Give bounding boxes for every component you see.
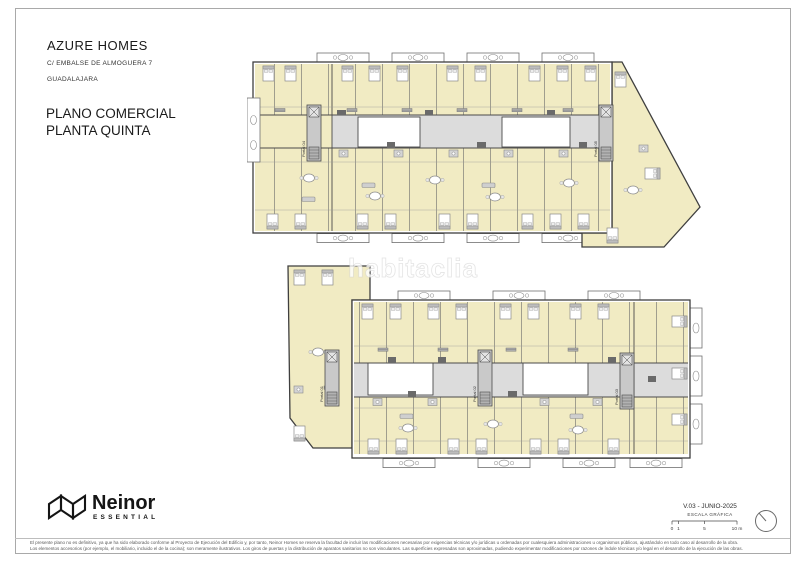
brand-name: Neinor <box>92 492 155 515</box>
footer-divider <box>15 538 790 539</box>
habitaclia-watermark: habitaclia <box>348 253 478 284</box>
scale-label: ESCALA GRÁFICA <box>660 512 760 517</box>
legal-disclaimer: El presente plano no es definitivo, ya q… <box>30 540 778 551</box>
project-address: C/ EMBALSE DE ALMOGUERA 7 <box>47 60 152 67</box>
courtyard <box>523 363 588 395</box>
north-arrow-icon <box>752 507 780 535</box>
plan-sheet: AZURE HOMES C/ EMBALSE DE ALMOGUERA 7 GU… <box>0 0 800 565</box>
portal-label: Portal 01 <box>319 385 324 402</box>
courtyard <box>502 117 570 147</box>
floor-plan-top: Portal 04 Portal 05 <box>247 50 707 250</box>
scale-tick-10: 10 m <box>732 526 743 532</box>
scale-tick-0: 0 <box>671 526 674 532</box>
floor-plan-bottom: Portal 01 Portal 02 Portal 03 <box>278 256 738 471</box>
side-balcony <box>247 98 260 162</box>
sheet-title: PLANO COMERCIAL PLANTA QUINTA <box>46 105 176 139</box>
sheet-title-line1: PLANO COMERCIAL <box>46 105 176 122</box>
legal-disclaimer-line1: El presente plano no es definitivo, ya q… <box>30 540 778 546</box>
brand-tagline: ESSENTIAL <box>93 514 158 521</box>
portal-label: Portal 04 <box>301 140 306 157</box>
scale-tick-1: 1 <box>677 526 680 532</box>
project-name: AZURE HOMES <box>47 38 148 53</box>
portal-label: Portal 03 <box>614 388 619 405</box>
portal-label: Portal 05 <box>593 140 598 157</box>
scale-tick-5: 5 <box>703 526 706 532</box>
graphic-scale-bar: 0 1 5 10 m <box>668 518 752 532</box>
neinor-logo-icon <box>47 492 87 522</box>
version-label: V.03 - JUNIO-2025 <box>660 503 760 510</box>
project-city: GUADALAJARA <box>47 76 98 83</box>
sheet-title-line2: PLANTA QUINTA <box>46 122 176 139</box>
courtyard <box>368 363 433 395</box>
legal-disclaimer-line2: Los elementos accesorios (por ejemplo, e… <box>30 546 778 552</box>
portal-label: Portal 02 <box>472 385 477 402</box>
